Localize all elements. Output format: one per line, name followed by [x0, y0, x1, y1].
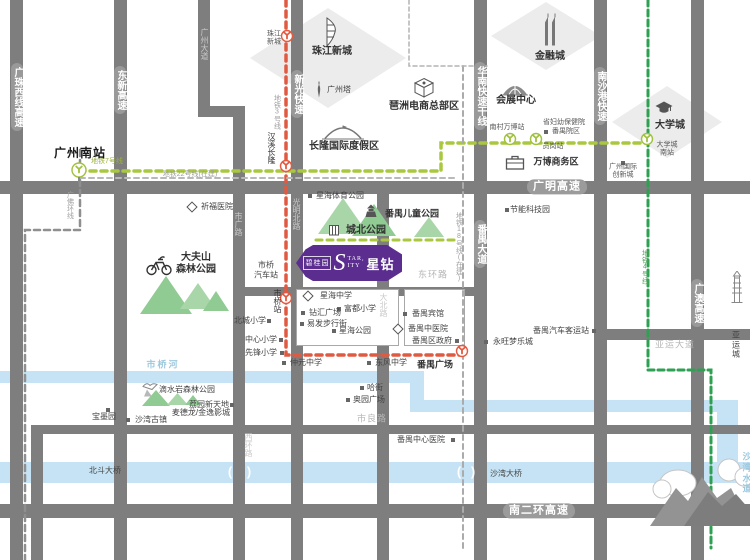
- map-label: 广澳高速: [691, 279, 703, 327]
- map-label: 番禺中医院: [408, 324, 448, 334]
- map-label: 汉溪长隆: [267, 132, 275, 164]
- poi-square-icon: [403, 312, 407, 316]
- map-label: ): [247, 464, 251, 480]
- metro-station-icon: [281, 30, 294, 49]
- map-label: 亚运城: [729, 331, 743, 360]
- poi-square-icon: [455, 339, 459, 343]
- map-label: 光明北路: [292, 198, 300, 230]
- twin-icon: [538, 14, 562, 47]
- map-label: 市桥 汽车站: [254, 260, 278, 279]
- poi-square-icon: [332, 329, 336, 333]
- metro-station-icon: [456, 345, 469, 364]
- dia-icon: [188, 203, 196, 211]
- map-label: 番禺汽车客运站: [533, 326, 589, 336]
- map-label: 东环路: [418, 270, 448, 281]
- map-label: 珠江 新城: [267, 31, 281, 48]
- park-mountain-icon: [140, 276, 192, 314]
- map-label: 大北路: [379, 293, 387, 317]
- map-label: 星海公园: [339, 326, 371, 336]
- map-label: 城北公园: [346, 225, 386, 237]
- map-label: 琶洲电商总部区: [389, 101, 459, 113]
- dia-icon: [394, 325, 402, 333]
- map-label: 市良路: [357, 414, 387, 425]
- tower-icon: [315, 82, 323, 99]
- poi-square-icon: [282, 361, 286, 365]
- poi-square-icon: [592, 329, 596, 333]
- map-label: 广珠西线高速: [11, 63, 23, 131]
- map-label: 地铁22号线(在建): [163, 171, 217, 179]
- map-label: 番禺中心医院: [397, 435, 445, 445]
- map-label: 宝墨园: [92, 412, 116, 422]
- map-label: 奥园广场: [353, 395, 385, 405]
- bird-icon: [141, 381, 159, 398]
- map-label: 广州塔: [327, 85, 351, 95]
- location-map: 碧桂园 S TAR,ITY 星钻 广珠西线高速东新高速新光快速华南快速干线南沙港…: [0, 0, 750, 560]
- metro-station-icon: [504, 133, 517, 152]
- map-label: ): [471, 464, 475, 480]
- poi-square-icon: [267, 319, 271, 323]
- map-label: 南二环高速: [503, 503, 575, 518]
- poi-square-icon: [360, 386, 364, 390]
- map-label: 市桥河: [146, 360, 179, 371]
- map-label: 万博商务区: [533, 157, 578, 168]
- map-label: 沙湾古镇: [135, 415, 167, 425]
- map-label: 番禺宾馆: [412, 309, 444, 319]
- poi-square-icon: [301, 311, 305, 315]
- map-label: 钻汇广场: [309, 308, 341, 318]
- map-label: 麦德龙/金逸影城: [172, 408, 230, 418]
- map-label: 番禺区政府: [412, 336, 452, 346]
- map-label: 富都小学: [344, 304, 376, 314]
- map-label: 地铁3号线: [274, 95, 281, 130]
- road: [233, 106, 245, 560]
- map-label: 大夫山 森林公园: [176, 252, 216, 276]
- road: [31, 425, 750, 434]
- poi-square-icon: [308, 194, 312, 198]
- poi-square-icon: [300, 322, 304, 326]
- map-label: 番禺广场: [417, 360, 453, 371]
- map-label: 地铁18号线(在建): [456, 212, 463, 282]
- metro-station-icon: [530, 133, 543, 152]
- star-city-logo: 碧桂园 S TAR,ITY 星钻: [296, 245, 402, 281]
- dia-icon: [304, 292, 312, 300]
- map-label: 珠江新城: [312, 46, 352, 58]
- cap-icon: [655, 101, 674, 115]
- poi-square-icon: [126, 418, 130, 422]
- map-label: 地铁4号线: [642, 250, 649, 285]
- map-label: 中心小学: [245, 335, 277, 345]
- map-label: 华南快速干线: [474, 62, 486, 130]
- map-label: 北城小学: [234, 316, 266, 326]
- map-label: 先锋小学: [245, 348, 277, 358]
- map-label: 滴水岩森林公园: [159, 385, 215, 395]
- poi-square-icon: [346, 398, 350, 402]
- poi-square-icon: [279, 338, 283, 342]
- map-label: (: [228, 464, 232, 480]
- map-label: 员岗站: [543, 143, 564, 151]
- map-label: 节能科技园: [510, 205, 550, 215]
- river: [0, 371, 424, 383]
- park-mountain-icon: [180, 283, 216, 309]
- metro-station-icon: [641, 133, 654, 152]
- brand-label: 碧桂园: [303, 256, 331, 270]
- map-label: 广州国际 创新城: [609, 164, 637, 181]
- map-label: 仲元中学: [290, 358, 322, 368]
- curved-icon: [323, 17, 339, 47]
- pag2-icon: [731, 271, 744, 303]
- map-label: 会展中心: [496, 95, 536, 107]
- brief-icon: [505, 154, 525, 170]
- map-label: 省妇幼保健院: [543, 119, 585, 127]
- road: [597, 329, 750, 340]
- map-label: 大学城 南站: [657, 142, 678, 159]
- map-label: 沙湾大桥: [490, 469, 522, 479]
- map-label: 广佛环线: [67, 191, 74, 219]
- map-label: 长隆国际度假区: [309, 141, 379, 153]
- map-label: 星海体育公园: [316, 191, 364, 201]
- park-mountain-icon: [414, 217, 444, 237]
- metro-station-icon: [280, 160, 293, 179]
- road: [0, 504, 750, 518]
- map-label: 广明高速: [527, 179, 587, 194]
- map-label: 金融城: [535, 51, 565, 63]
- poi-square-icon: [505, 208, 509, 212]
- map-label: 北斗大桥: [89, 466, 121, 476]
- bike-icon: [146, 255, 172, 276]
- poi-square-icon: [484, 340, 488, 344]
- map-label: 东风中学: [375, 358, 407, 368]
- map-label: 祈福医院: [201, 202, 233, 212]
- bldg-icon: [329, 224, 340, 236]
- river: [410, 400, 717, 412]
- map-label: 永旺梦乐城: [493, 337, 533, 347]
- map-label: 东新高速: [114, 66, 126, 114]
- map-label: 星海中学: [320, 291, 352, 301]
- map-label: 西环路: [244, 433, 252, 457]
- map-label: 广州南站: [54, 146, 106, 160]
- map-label: 大学城: [655, 120, 685, 132]
- cube-icon: [413, 78, 435, 99]
- park-mountain-icon: [203, 291, 229, 311]
- poi-square-icon: [230, 403, 234, 407]
- map-label: 番禺儿童公园: [385, 209, 439, 220]
- map-label: 南村万博站: [490, 124, 525, 132]
- poi-square-icon: [367, 361, 371, 365]
- road: [31, 425, 43, 560]
- map-label: 亚运大道: [655, 340, 695, 351]
- poi-square-icon: [544, 130, 548, 134]
- poi-square-icon: [280, 351, 284, 355]
- road: [0, 181, 750, 194]
- map-label: 广州大道: [200, 28, 208, 60]
- map-label: 沙湾水道: [742, 451, 750, 494]
- map-label: 哈街: [367, 383, 383, 393]
- logo-s: S: [333, 253, 345, 273]
- dome-icon: [502, 83, 528, 96]
- map-label: 番禺院区: [552, 128, 580, 136]
- logo-starcity: TAR,ITY: [347, 256, 364, 270]
- map-label: 番禺大道: [474, 220, 486, 268]
- logo-name: 星钻: [367, 254, 395, 273]
- map-label: 南沙港快速: [594, 67, 606, 125]
- park-mountain-icon: [167, 393, 188, 405]
- metro-station-icon: [71, 162, 87, 184]
- map-label: 市桥站: [273, 289, 281, 313]
- map-label: (: [457, 464, 461, 480]
- poi-square-icon: [451, 438, 455, 442]
- pagoda-icon: [364, 205, 378, 218]
- map-label: 市广路: [234, 212, 242, 236]
- tent-icon: [322, 126, 364, 141]
- map-label: 新光快速: [291, 70, 303, 118]
